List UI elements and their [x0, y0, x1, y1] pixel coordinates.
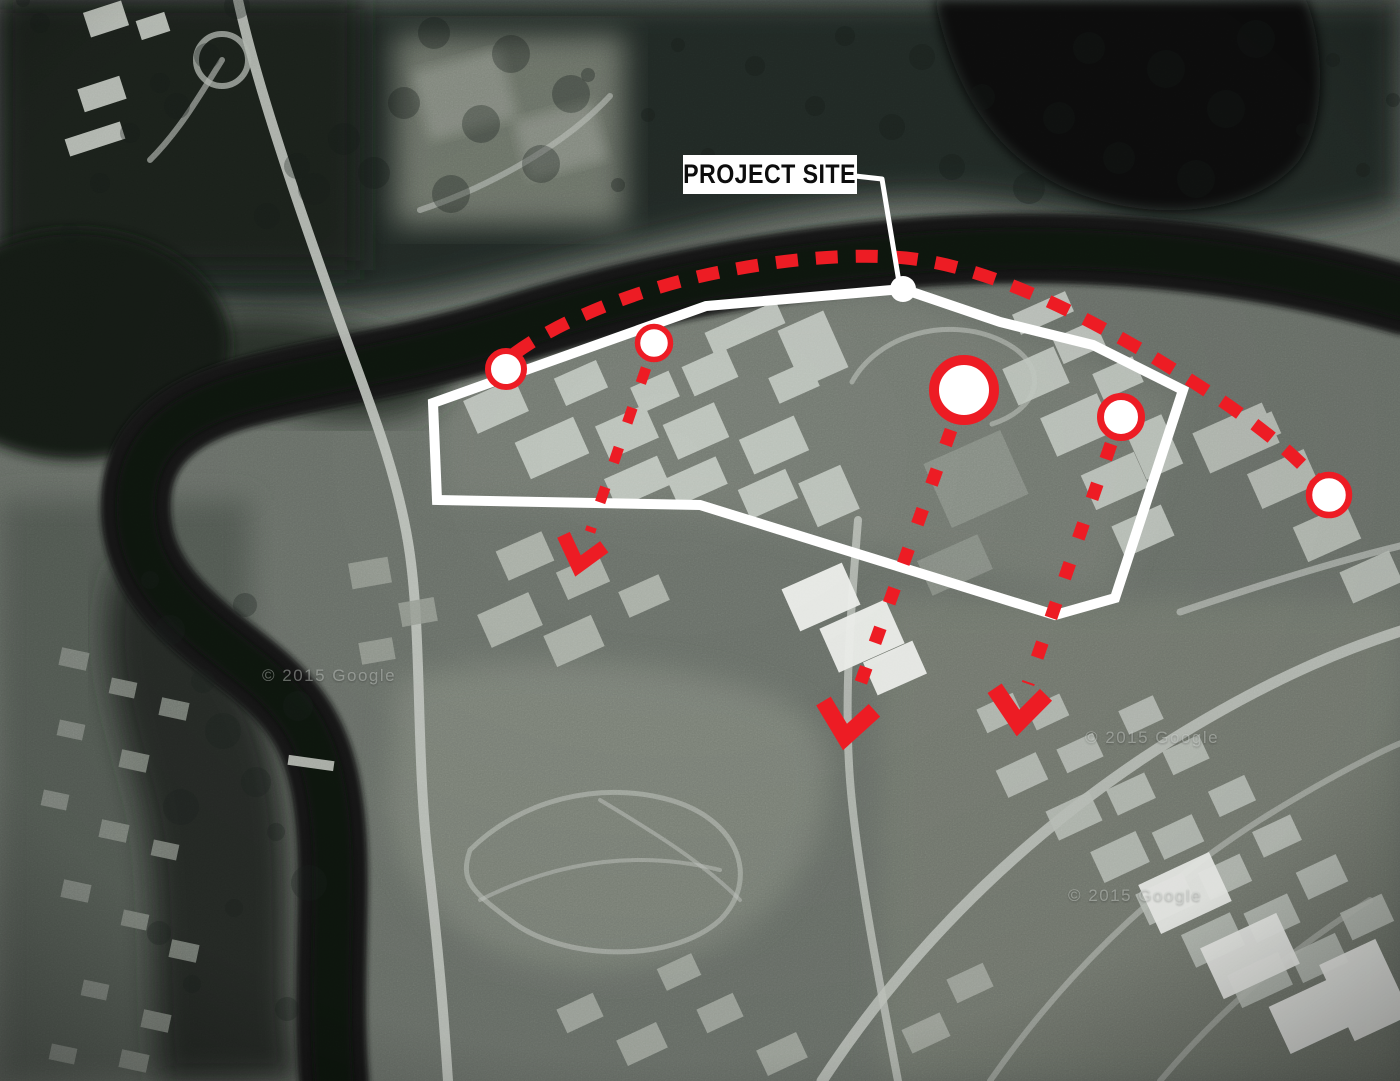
access-node-marker — [1101, 397, 1142, 438]
label-leader-line — [855, 176, 899, 282]
project-site-label-text: PROJECT SITE — [684, 159, 857, 190]
site-anchor-dot — [890, 276, 916, 302]
access-node-marker — [638, 327, 671, 360]
access-node-marker — [488, 351, 524, 387]
aerial-site-map: PROJECT SITE © 2015 Google© 2015 Google©… — [0, 0, 1400, 1081]
project-site-label: PROJECT SITE — [683, 155, 857, 194]
movement-route-dashed — [856, 430, 951, 696]
access-node-marker — [1309, 475, 1349, 515]
route-arrowhead — [561, 541, 599, 570]
route-arrowhead — [824, 708, 868, 739]
access-node-marker — [934, 360, 994, 420]
map-watermark: © 2015 Google — [262, 666, 396, 686]
movement-route-dashed — [1028, 444, 1111, 684]
map-watermark: © 2015 Google — [1068, 886, 1202, 906]
map-watermark: © 2015 Google — [1085, 728, 1219, 748]
route-arrowhead — [997, 695, 1040, 724]
